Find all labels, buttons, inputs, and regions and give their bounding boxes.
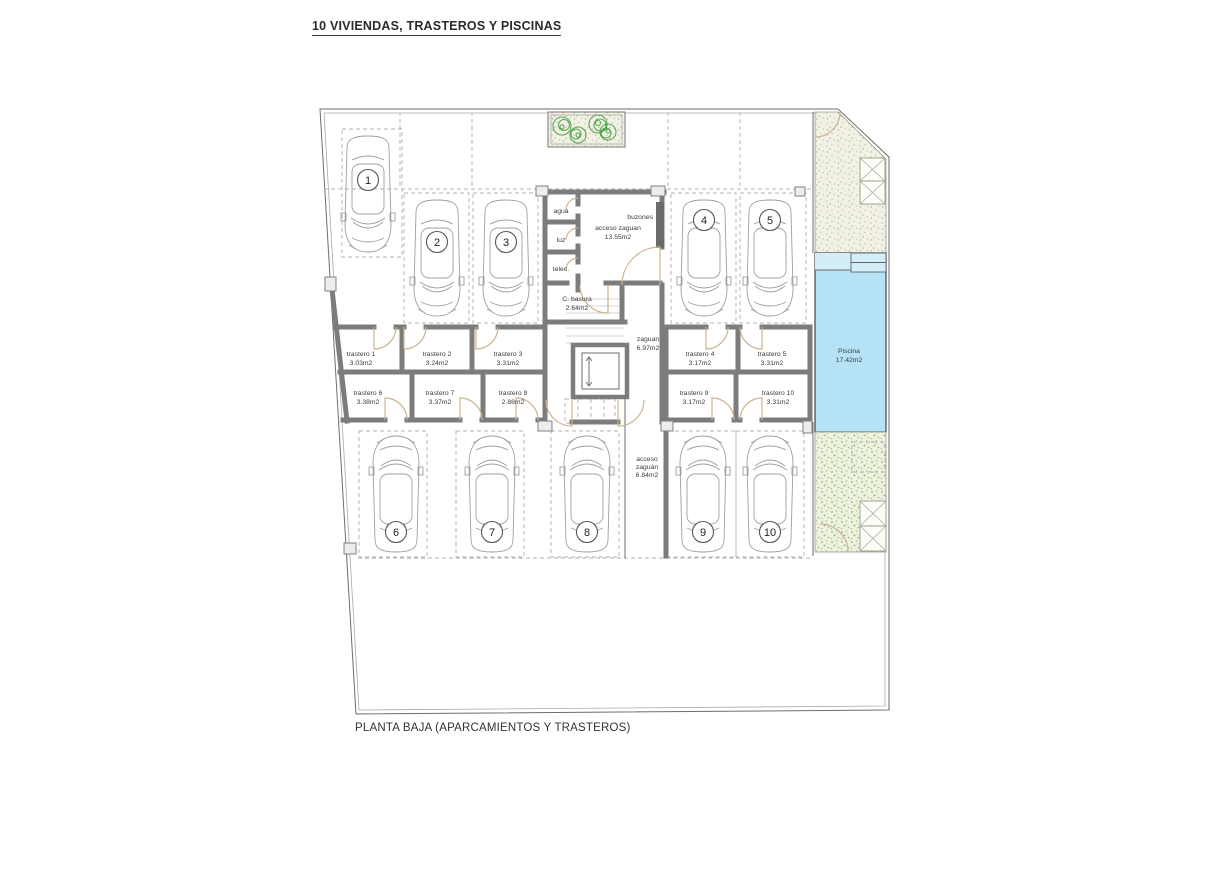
car-1 <box>341 136 395 252</box>
svg-text:6.84m2: 6.84m2 <box>636 472 659 479</box>
svg-text:3.38m2: 3.38m2 <box>357 399 380 406</box>
svg-text:3.31m2: 3.31m2 <box>767 399 790 406</box>
trastero-8-label: trastero 8 <box>499 390 528 397</box>
parking-space-3: 3 <box>496 232 517 253</box>
cars <box>341 136 797 552</box>
c-basura-area: 2.64m2 <box>566 305 589 312</box>
svg-text:3.03m2: 3.03m2 <box>350 360 373 367</box>
floor-plan-drawing: Piscina 17.42m2 <box>0 0 1220 870</box>
svg-text:3.31m2: 3.31m2 <box>761 360 784 367</box>
floor-plan-page: 10 VIVIENDAS, TRASTEROS Y PISCINAS <box>0 0 1220 870</box>
parking-space-1: 1 <box>358 170 379 191</box>
car-3 <box>479 200 533 316</box>
parking-space-2: 2 <box>427 232 448 253</box>
terrace <box>815 112 886 253</box>
svg-text:3: 3 <box>503 237 509 249</box>
svg-text:3.17m2: 3.17m2 <box>683 399 706 406</box>
c-basura-label: C. basura <box>562 296 592 303</box>
walls-trasteros-left <box>336 327 545 422</box>
trastero-2-label: trastero 2 <box>423 351 452 358</box>
svg-text:2: 2 <box>434 237 440 249</box>
svg-text:5: 5 <box>767 215 773 227</box>
planter <box>548 112 625 147</box>
utility-agua-label: agua <box>553 208 568 215</box>
svg-text:8: 8 <box>584 527 590 539</box>
svg-text:9: 9 <box>700 527 706 539</box>
wall-left-boundary <box>331 281 347 421</box>
acceso-zaguan-area: 13.55m2 <box>605 234 632 241</box>
trastero-1-label: trastero 1 <box>347 351 376 358</box>
pool-label: Piscina <box>838 348 860 355</box>
svg-text:3.24m2: 3.24m2 <box>426 360 449 367</box>
parking-space-6: 6 <box>386 522 407 543</box>
trastero-9-label: trastero 9 <box>680 390 709 397</box>
svg-text:7: 7 <box>489 527 495 539</box>
trastero-3-label: trastero 3 <box>494 351 523 358</box>
utility-telec-label: telec. <box>553 266 569 273</box>
svg-text:1: 1 <box>365 175 371 187</box>
pool-step <box>851 253 886 263</box>
zaguan-area: 6.97m2 <box>637 345 660 352</box>
parking-space-7: 7 <box>482 522 503 543</box>
svg-text:zaguán: zaguán <box>636 464 659 471</box>
mailboxes-icon <box>656 202 664 248</box>
acceso-zaguan2-label: acceso <box>636 456 658 463</box>
vent-grate-icon <box>860 158 885 204</box>
svg-text:3.31m2: 3.31m2 <box>497 360 520 367</box>
trastero-5-label: trastero 5 <box>758 351 787 358</box>
parking-space-9: 9 <box>693 522 714 543</box>
car-2 <box>410 200 464 316</box>
parking-space-4: 4 <box>694 210 715 231</box>
svg-text:10: 10 <box>764 527 776 539</box>
utility-luz-label: luz <box>557 237 566 244</box>
zaguan-label: zaguan <box>637 336 660 343</box>
parking-space-10: 10 <box>760 522 781 543</box>
plan-caption: PLANTA BAJA (APARCAMIENTOS Y TRASTEROS) <box>355 722 631 734</box>
svg-text:3.37m2: 3.37m2 <box>429 399 452 406</box>
trastero-4-label: trastero 4 <box>686 351 715 358</box>
parking-numbers: 1 2 3 4 5 6 7 8 9 10 <box>358 170 781 543</box>
trastero-7-label: trastero 7 <box>426 390 455 397</box>
svg-text:2.88m2: 2.88m2 <box>502 399 525 406</box>
trastero-10-label: trastero 10 <box>762 390 795 397</box>
svg-text:4: 4 <box>701 215 707 227</box>
pool: Piscina 17.42m2 <box>815 253 886 432</box>
pool-area: 17.42m2 <box>836 357 863 364</box>
svg-text:3.17m2: 3.17m2 <box>689 360 712 367</box>
garden <box>815 432 886 552</box>
buzones-label: buzones <box>627 214 653 221</box>
elevator <box>573 345 627 397</box>
pool-water <box>815 253 886 432</box>
pool-step <box>851 263 886 273</box>
svg-text:6: 6 <box>393 527 399 539</box>
vent-grate-icon <box>860 501 886 551</box>
acceso-zaguan-label: acceso zaguan <box>595 225 641 232</box>
parking-space-8: 8 <box>577 522 598 543</box>
parking-space-5: 5 <box>760 210 781 231</box>
trastero-6-label: trastero 6 <box>354 390 383 397</box>
